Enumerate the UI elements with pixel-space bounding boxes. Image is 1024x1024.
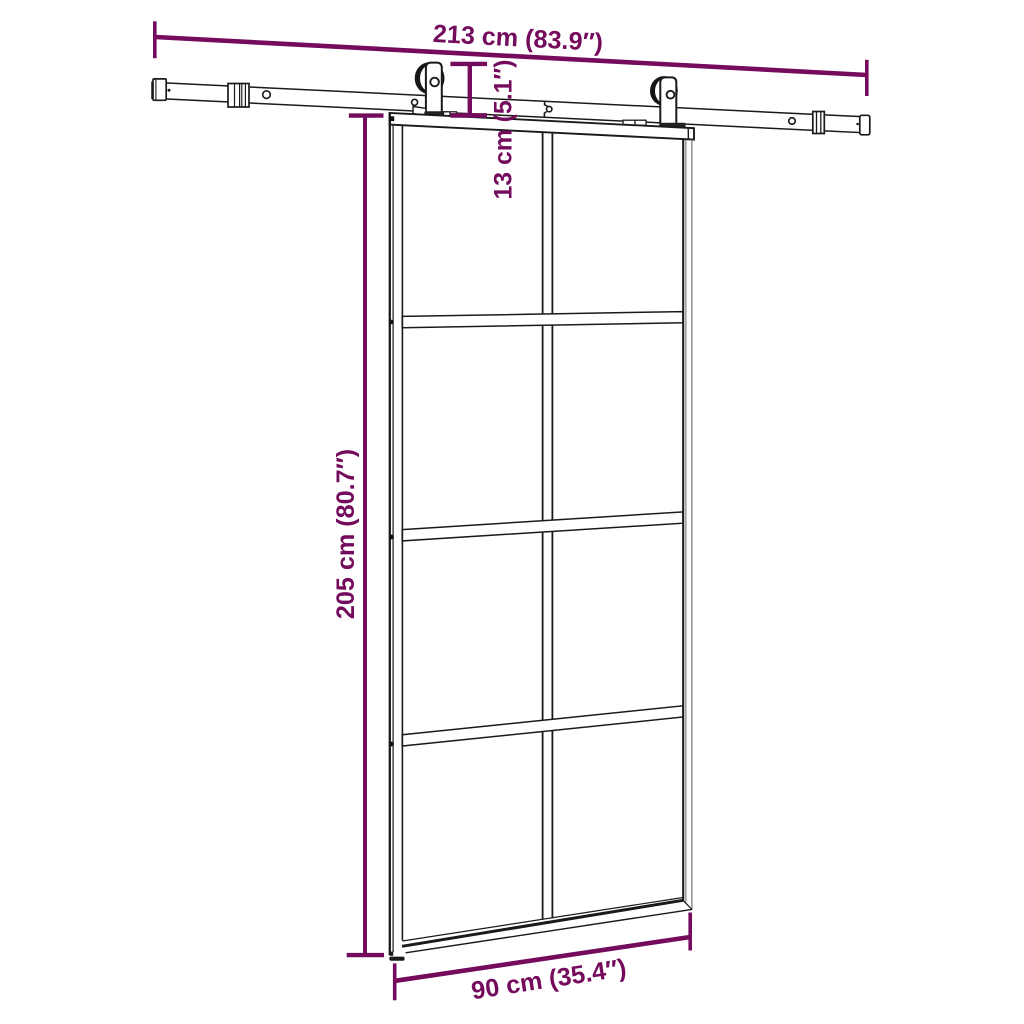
svg-text:13 cm (5.1″): 13 cm (5.1″) bbox=[491, 59, 518, 199]
svg-text:205 cm (80.7″): 205 cm (80.7″) bbox=[332, 449, 360, 619]
